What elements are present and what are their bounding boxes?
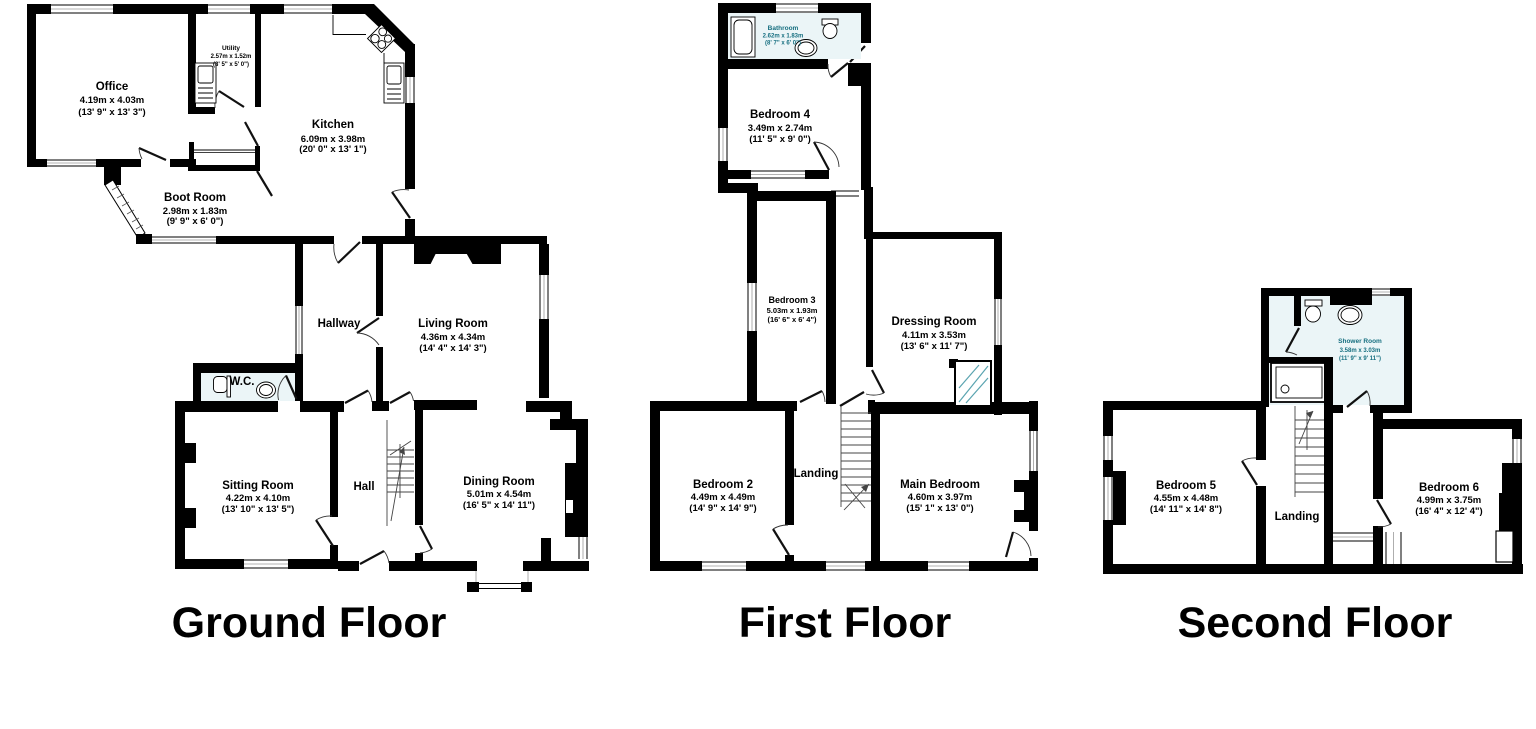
svg-text:Ground Floor: Ground Floor	[172, 599, 447, 647]
svg-text:Boot Room: Boot Room	[164, 192, 226, 204]
svg-text:Main Bedroom: Main Bedroom	[900, 479, 980, 491]
svg-text:4.60m x 3.97m: 4.60m x 3.97m	[908, 492, 972, 503]
svg-text:(14' 9" x 14' 9"): (14' 9" x 14' 9")	[689, 503, 756, 514]
svg-text:Dressing Room: Dressing Room	[892, 316, 977, 328]
svg-text:4.36m x 4.34m: 4.36m x 4.34m	[421, 332, 485, 343]
svg-text:Hallway: Hallway	[318, 318, 361, 330]
svg-text:Bedroom 3: Bedroom 3	[768, 295, 815, 305]
svg-text:2.62m x 1.83m: 2.62m x 1.83m	[763, 34, 804, 40]
svg-text:(16' 5" x 14' 11"): (16' 5" x 14' 11")	[463, 500, 535, 511]
svg-text:Dining Room: Dining Room	[463, 476, 535, 488]
svg-text:Bedroom 6: Bedroom 6	[1419, 482, 1479, 494]
svg-text:(13' 6" x 11' 7"): (13' 6" x 11' 7")	[901, 341, 968, 352]
svg-text:Landing: Landing	[794, 468, 839, 480]
svg-text:(13' 9" x 13' 3"): (13' 9" x 13' 3")	[78, 107, 145, 118]
svg-text:Bedroom 4: Bedroom 4	[750, 109, 811, 121]
svg-text:Bathroom: Bathroom	[768, 25, 799, 32]
svg-text:(16' 4" x 12' 4"): (16' 4" x 12' 4")	[1415, 506, 1482, 517]
svg-text:Bedroom 2: Bedroom 2	[693, 479, 753, 491]
svg-text:4.22m x 4.10m: 4.22m x 4.10m	[226, 493, 290, 504]
svg-text:Living Room: Living Room	[418, 318, 488, 330]
svg-text:(13' 10" x 13' 5"): (13' 10" x 13' 5")	[222, 504, 295, 515]
svg-text:4.19m x 4.03m: 4.19m x 4.03m	[80, 95, 144, 106]
svg-text:Utility: Utility	[222, 45, 240, 52]
svg-text:4.11m x 3.53m: 4.11m x 3.53m	[902, 330, 966, 341]
svg-text:4.55m x 4.48m: 4.55m x 4.48m	[1154, 493, 1218, 504]
svg-text:(20' 0" x 13' 1"): (20' 0" x 13' 1")	[299, 144, 366, 155]
svg-text:(9' 9" x 6' 0"): (9' 9" x 6' 0")	[167, 216, 224, 227]
svg-text:5.03m x 1.93m: 5.03m x 1.93m	[767, 306, 818, 315]
svg-text:Second Floor: Second Floor	[1178, 599, 1453, 647]
svg-text:First Floor: First Floor	[739, 599, 952, 647]
svg-text:(14' 4" x 14' 3"): (14' 4" x 14' 3")	[419, 343, 486, 354]
svg-text:Bedroom 5: Bedroom 5	[1156, 480, 1217, 492]
svg-text:2.57m x 1.52m: 2.57m x 1.52m	[211, 54, 252, 60]
svg-text:(8' 7" x 6' 0"): (8' 7" x 6' 0")	[765, 41, 801, 47]
svg-text:Landing: Landing	[1275, 511, 1320, 523]
svg-text:(14' 11" x 14' 8"): (14' 11" x 14' 8")	[1150, 504, 1222, 515]
svg-text:(15' 1" x 13' 0"): (15' 1" x 13' 0")	[906, 503, 973, 514]
svg-text:3.49m x 2.74m: 3.49m x 2.74m	[748, 123, 812, 134]
svg-text:Hall: Hall	[353, 481, 374, 493]
svg-text:(8' 5" x 5' 0"): (8' 5" x 5' 0")	[213, 62, 249, 68]
svg-text:Shower Room: Shower Room	[1338, 338, 1382, 345]
svg-text:W.C.: W.C.	[230, 376, 255, 388]
svg-text:5.01m x 4.54m: 5.01m x 4.54m	[467, 489, 531, 500]
svg-text:(16' 6" x 6' 4"): (16' 6" x 6' 4")	[767, 315, 817, 324]
svg-text:4.99m x 3.75m: 4.99m x 3.75m	[1417, 495, 1481, 506]
svg-text:4.49m x 4.49m: 4.49m x 4.49m	[691, 492, 755, 503]
svg-text:Office: Office	[96, 81, 129, 93]
svg-text:3.58m x 3.03m: 3.58m x 3.03m	[1340, 348, 1381, 354]
svg-text:Sitting Room: Sitting Room	[222, 480, 294, 492]
svg-text:(11' 9" x 9' 11"): (11' 9" x 9' 11")	[1339, 356, 1381, 362]
svg-text:(11' 5" x 9' 0"): (11' 5" x 9' 0")	[749, 134, 811, 145]
svg-text:Kitchen: Kitchen	[312, 119, 354, 131]
